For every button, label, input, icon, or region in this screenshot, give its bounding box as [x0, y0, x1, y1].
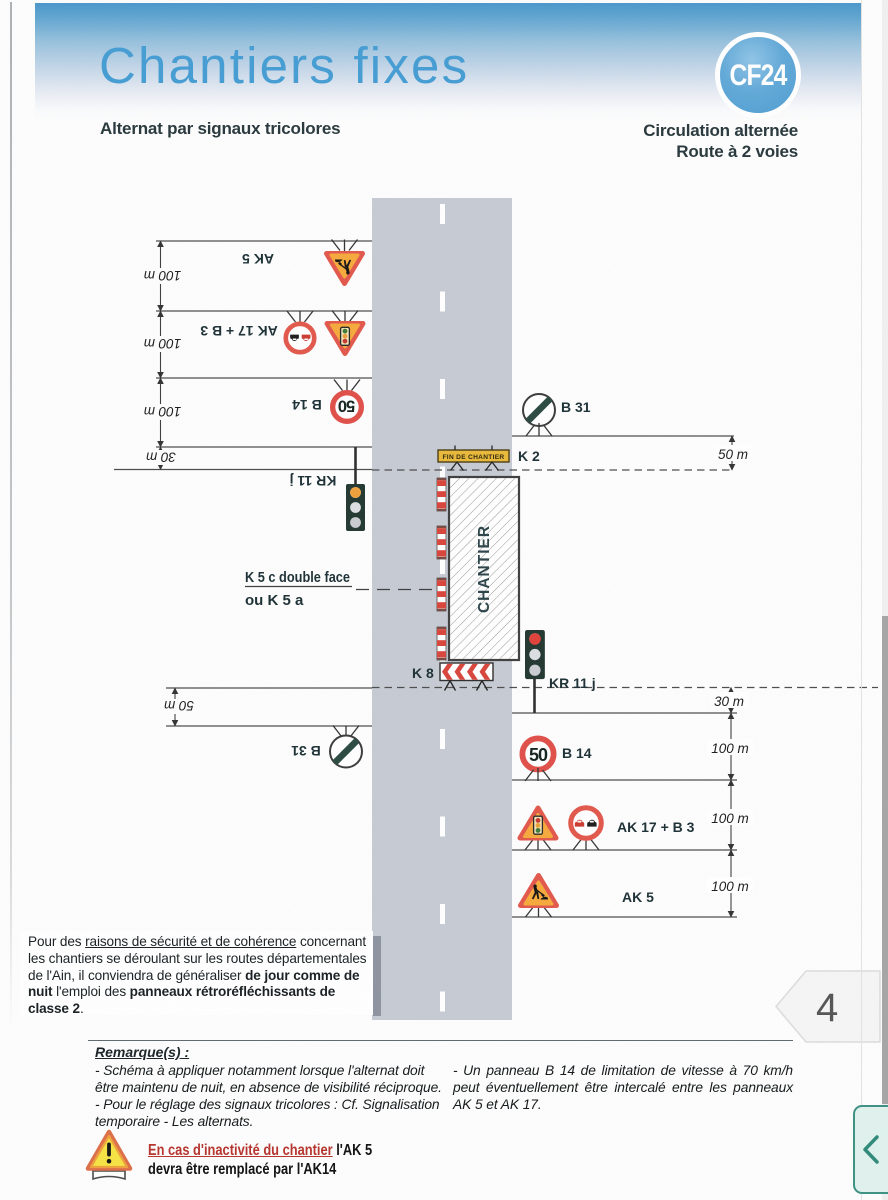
svg-text:KR 11 j: KR 11 j — [290, 473, 337, 489]
svg-text:AK 17 + B 3: AK 17 + B 3 — [200, 323, 278, 339]
svg-text:AK 5: AK 5 — [242, 251, 274, 267]
svg-text:CHANTIER: CHANTIER — [476, 525, 493, 613]
svg-text:50 m: 50 m — [164, 698, 194, 713]
svg-text:4: 4 — [816, 986, 838, 1030]
svg-text:50 m: 50 m — [718, 447, 748, 462]
svg-text:100 m: 100 m — [144, 336, 182, 351]
svg-text:KR 11 j: KR 11 j — [549, 675, 596, 691]
svg-text:B 14: B 14 — [562, 745, 592, 761]
svg-text:B 31: B 31 — [561, 399, 591, 415]
svg-text:100 m: 100 m — [711, 879, 749, 894]
svg-text:100 m: 100 m — [711, 811, 749, 826]
svg-text:K 2: K 2 — [518, 448, 540, 464]
svg-text:100 m: 100 m — [144, 268, 182, 283]
svg-text:100 m: 100 m — [711, 741, 749, 756]
svg-text:AK 17 + B 3: AK 17 + B 3 — [617, 819, 695, 835]
svg-text:B 31: B 31 — [291, 743, 321, 759]
svg-text:30 m: 30 m — [146, 450, 176, 465]
svg-text:FIN DE CHANTIER: FIN DE CHANTIER — [442, 454, 504, 461]
svg-text:30 m: 30 m — [714, 694, 744, 709]
svg-text:AK 5: AK 5 — [622, 889, 654, 905]
svg-text:K 8: K 8 — [412, 665, 434, 681]
svg-text:100 m: 100 m — [144, 404, 182, 419]
svg-text:ou K 5 a: ou K 5 a — [245, 592, 304, 609]
svg-text:B 14: B 14 — [292, 397, 322, 413]
svg-text:K 5 c double face: K 5 c double face — [245, 569, 350, 586]
